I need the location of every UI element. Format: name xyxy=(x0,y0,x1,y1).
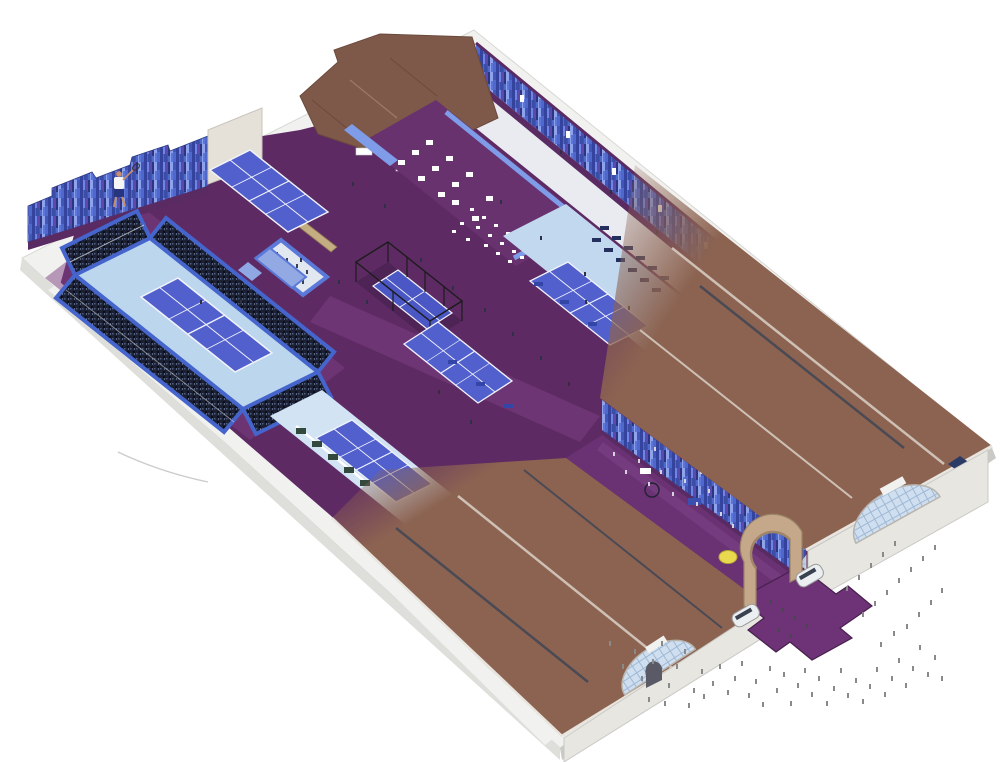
tennis-ball-sculpture xyxy=(719,551,737,564)
ground-swoosh-line xyxy=(118,452,208,482)
exhibit-stand2 xyxy=(688,498,701,505)
player-shorts xyxy=(114,189,124,197)
player-shirt xyxy=(114,177,124,189)
exhibit-stand xyxy=(640,468,651,474)
venue-illustration: Isometric cutaway illustration of an ind… xyxy=(0,0,1000,762)
isometric-venue-svg: Isometric cutaway illustration of an ind… xyxy=(0,0,1000,762)
player-head xyxy=(116,171,122,177)
